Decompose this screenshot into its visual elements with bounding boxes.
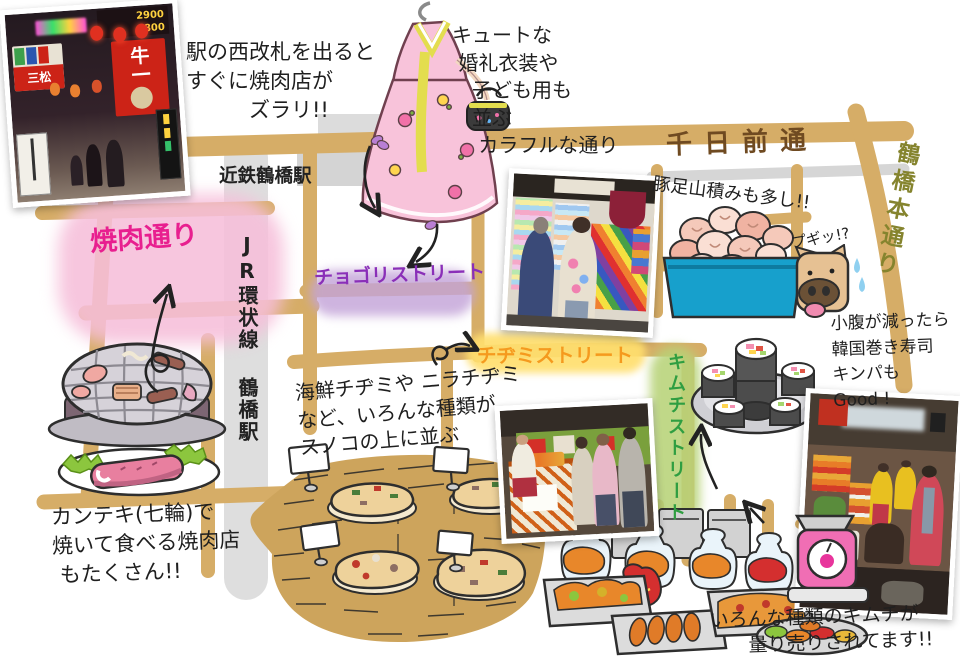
neon-sign (35, 17, 86, 36)
tsuruhashi-illustrated-map: 2900 6800 牛一 三松 (0, 0, 960, 661)
pigfeet-box-illustration (652, 196, 812, 324)
pedestrian-silhouette (104, 139, 124, 187)
beef-restaurant-sign: 牛一 (111, 38, 170, 117)
hanging-fabric (608, 191, 647, 229)
annotation-west-exit: 駅の西改札を出ると すぐに焼肉店が ズラリ!! (186, 38, 375, 125)
sweat-drop (854, 258, 860, 273)
street-label-sennichimae: 千日前通 (665, 119, 818, 161)
annotation-kimchi-sale: いろんな種類のキムチが 量り売りされてます!! (709, 600, 933, 660)
station-label-jr-loop-line: JR環状線 鶴橋駅 (233, 233, 262, 443)
vertical-black-sign (156, 109, 181, 180)
annotation-kimbap: 小腹が減ったら 韓国巻き寿司 キンパも Good ! (830, 308, 952, 414)
yakiniku-grill-illustration (35, 332, 240, 502)
white-menu-sign (16, 133, 51, 197)
red-lanterns (90, 22, 148, 45)
scale-tray (797, 516, 853, 530)
pedestrian-silhouette (70, 155, 84, 186)
sign-round-logo (130, 86, 153, 109)
station-label-kintetsu: 近鉄鶴橋駅 (219, 162, 312, 188)
street-label-kimchi: キムチストリート (662, 352, 688, 524)
street-label-yakiniku: 焼肉通り (89, 212, 199, 258)
scale-base (788, 588, 868, 602)
orange-lanterns (50, 79, 118, 99)
pig-tongue (805, 303, 825, 317)
beef-sign-text: 牛一 (125, 45, 155, 85)
hanging-items (631, 228, 650, 274)
pedestrian-silhouette (84, 144, 102, 186)
chogori-fabric-shop-photo (501, 168, 661, 338)
kimbap-rolls (702, 339, 814, 427)
sweat-drop (859, 277, 865, 292)
yakiniku-alley-photo: 2900 6800 牛一 三松 (0, 0, 191, 208)
annotation-kanteki: カンテキ(七輪)で 焼いて食べる焼肉店 もたくさん!! (51, 497, 242, 590)
annotation-hanbok-street: キュートな 婚礼衣装や 子ども用も 並ぶ カラフルな通り (452, 22, 618, 160)
hanger-hook (420, 3, 430, 20)
alley-night-background: 2900 6800 牛一 三松 (5, 3, 186, 202)
